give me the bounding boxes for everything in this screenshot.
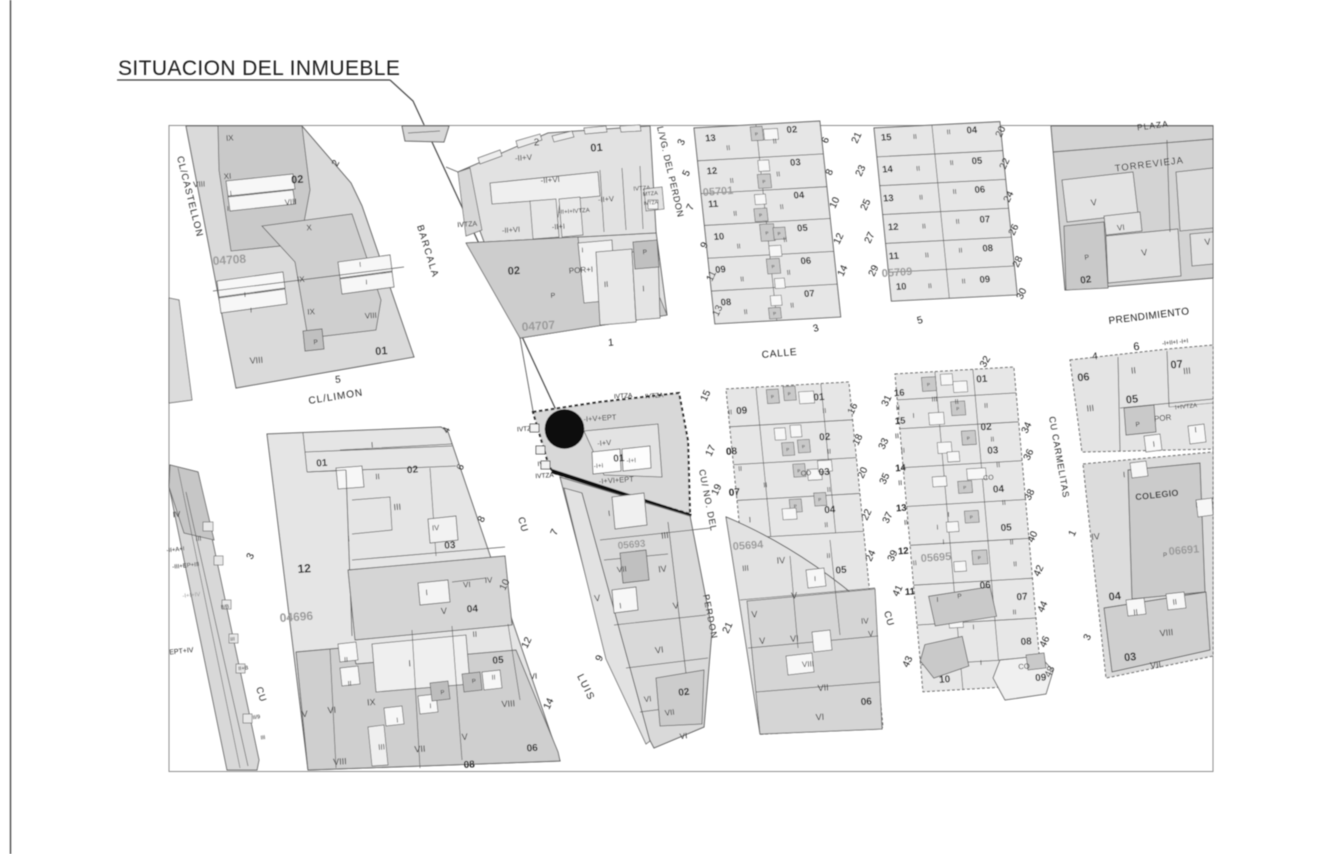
svg-text:13: 13 bbox=[896, 503, 907, 515]
svg-text:05695: 05695 bbox=[920, 551, 951, 565]
svg-text:III: III bbox=[661, 530, 670, 541]
svg-text:IV: IV bbox=[485, 575, 494, 585]
svg-text:VII: VII bbox=[414, 744, 426, 755]
svg-text:V: V bbox=[594, 593, 601, 604]
svg-text:II: II bbox=[925, 252, 930, 259]
svg-text:II: II bbox=[895, 433, 899, 440]
svg-text:III: III bbox=[1086, 403, 1095, 414]
svg-text:P: P bbox=[970, 515, 973, 520]
svg-text:II: II bbox=[1130, 365, 1136, 375]
svg-text:06: 06 bbox=[1077, 371, 1090, 384]
svg-text:IV: IV bbox=[776, 555, 785, 566]
svg-text:02: 02 bbox=[291, 174, 304, 187]
svg-text:II: II bbox=[1012, 609, 1016, 616]
svg-text:-I+I: -I+I bbox=[626, 457, 636, 465]
svg-text:-II+VI: -II+VI bbox=[540, 175, 560, 185]
svg-text:08: 08 bbox=[463, 759, 475, 771]
svg-text:IV: IV bbox=[658, 563, 668, 574]
svg-text:VI: VI bbox=[1117, 223, 1126, 233]
svg-text:VI: VI bbox=[463, 580, 471, 590]
svg-text:II: II bbox=[776, 171, 781, 178]
svg-text:01: 01 bbox=[375, 345, 388, 358]
svg-text:07: 07 bbox=[804, 288, 816, 300]
svg-text:04: 04 bbox=[793, 190, 805, 202]
svg-text:01: 01 bbox=[316, 458, 328, 470]
svg-text:04: 04 bbox=[1108, 590, 1122, 603]
svg-text:IX: IX bbox=[307, 307, 316, 317]
svg-text:P: P bbox=[967, 436, 970, 441]
svg-text:II: II bbox=[779, 204, 784, 211]
svg-text:IVTZA: IVTZA bbox=[535, 472, 555, 480]
svg-text:II: II bbox=[904, 520, 908, 527]
svg-text:II: II bbox=[928, 283, 933, 290]
svg-text:02: 02 bbox=[786, 124, 798, 136]
svg-text:II: II bbox=[950, 160, 955, 167]
svg-text:IV: IV bbox=[432, 523, 440, 532]
svg-text:01: 01 bbox=[590, 142, 603, 155]
svg-text:IV: IV bbox=[861, 616, 870, 626]
svg-text:V: V bbox=[301, 709, 308, 719]
svg-text:P: P bbox=[472, 679, 476, 685]
svg-text:01: 01 bbox=[976, 374, 988, 386]
svg-text:02: 02 bbox=[507, 265, 520, 278]
svg-text:03: 03 bbox=[790, 157, 802, 169]
svg-text:06: 06 bbox=[800, 256, 812, 268]
svg-text:III: III bbox=[931, 396, 937, 403]
svg-text:IX: IX bbox=[367, 697, 376, 708]
svg-text:13: 13 bbox=[883, 193, 895, 204]
svg-text:P: P bbox=[786, 447, 789, 452]
svg-text:II: II bbox=[344, 657, 348, 664]
svg-text:05701: 05701 bbox=[702, 185, 733, 199]
svg-text:P: P bbox=[762, 179, 766, 184]
svg-text:11: 11 bbox=[708, 199, 720, 211]
svg-text:II: II bbox=[729, 178, 734, 185]
svg-text:10: 10 bbox=[939, 674, 951, 686]
svg-text:-II+I: -II+I bbox=[551, 222, 565, 232]
svg-text:05709: 05709 bbox=[881, 266, 912, 280]
svg-text:VIII: VIII bbox=[284, 197, 297, 207]
svg-text:II: II bbox=[1009, 539, 1013, 546]
svg-text:VII: VII bbox=[664, 708, 675, 718]
svg-text:II: II bbox=[743, 309, 748, 316]
svg-text:V: V bbox=[751, 609, 758, 619]
svg-text:II: II bbox=[375, 472, 380, 481]
svg-text:12: 12 bbox=[706, 166, 718, 178]
svg-text:VIII: VIII bbox=[333, 756, 347, 767]
svg-text:-II+V: -II+V bbox=[515, 153, 533, 163]
svg-text:06: 06 bbox=[526, 743, 538, 755]
svg-text:12: 12 bbox=[898, 546, 909, 558]
svg-text:II: II bbox=[783, 237, 788, 244]
svg-text:CO: CO bbox=[1018, 661, 1030, 671]
svg-text:II: II bbox=[763, 482, 767, 489]
svg-text:II: II bbox=[822, 408, 826, 415]
svg-text:14: 14 bbox=[895, 463, 907, 475]
svg-text:II: II bbox=[952, 189, 957, 196]
svg-text:III: III bbox=[742, 564, 749, 573]
svg-text:II: II bbox=[772, 138, 777, 145]
svg-text:VIII: VIII bbox=[1159, 627, 1173, 638]
svg-text:P: P bbox=[1163, 553, 1167, 559]
svg-text:II: II bbox=[996, 462, 1000, 469]
svg-text:06: 06 bbox=[979, 580, 991, 592]
svg-text:02: 02 bbox=[980, 422, 992, 434]
svg-text:05: 05 bbox=[492, 655, 504, 667]
svg-text:VI: VI bbox=[790, 633, 799, 644]
svg-text:II: II bbox=[955, 219, 960, 226]
svg-text:08: 08 bbox=[726, 446, 738, 458]
svg-text:03: 03 bbox=[1124, 651, 1137, 664]
svg-text:POR: POR bbox=[1154, 413, 1172, 424]
svg-text:VIII: VIII bbox=[501, 698, 515, 709]
svg-text:II: II bbox=[958, 248, 963, 255]
svg-text:VII: VII bbox=[616, 564, 627, 574]
svg-text:III: III bbox=[1183, 366, 1192, 377]
svg-text:P: P bbox=[773, 311, 777, 316]
svg-text:15: 15 bbox=[895, 416, 907, 428]
svg-text:CO: CO bbox=[983, 475, 995, 483]
svg-text:II: II bbox=[826, 553, 830, 560]
svg-text:04696: 04696 bbox=[279, 609, 314, 625]
svg-text:01: 01 bbox=[613, 453, 625, 465]
svg-text:II: II bbox=[786, 270, 791, 277]
svg-text:-II+VI: -II+VI bbox=[502, 225, 521, 235]
svg-text:VI: VI bbox=[529, 672, 537, 682]
svg-text:09: 09 bbox=[736, 405, 748, 417]
svg-text:13: 13 bbox=[705, 133, 717, 145]
svg-text:05694: 05694 bbox=[732, 539, 764, 553]
svg-text:II: II bbox=[984, 403, 988, 410]
svg-text:04: 04 bbox=[966, 125, 978, 137]
svg-text:11: 11 bbox=[888, 251, 900, 262]
svg-text:03: 03 bbox=[818, 467, 830, 479]
svg-text:II: II bbox=[961, 278, 966, 285]
svg-text:03: 03 bbox=[987, 445, 999, 457]
svg-text:P: P bbox=[550, 292, 555, 299]
svg-text:P: P bbox=[802, 444, 805, 449]
svg-text:02: 02 bbox=[1080, 274, 1093, 286]
svg-text:VI: VI bbox=[654, 644, 664, 655]
svg-text:05: 05 bbox=[971, 156, 983, 168]
svg-text:II+B: II+B bbox=[238, 665, 249, 672]
svg-text:VIII: VIII bbox=[364, 311, 377, 321]
svg-text:P: P bbox=[978, 555, 981, 560]
svg-text:06: 06 bbox=[860, 696, 872, 708]
svg-text:02: 02 bbox=[819, 432, 831, 444]
svg-text:6: 6 bbox=[1133, 341, 1140, 354]
svg-text:II: II bbox=[738, 466, 742, 473]
svg-text:P: P bbox=[956, 406, 959, 411]
svg-text:CO: CO bbox=[800, 470, 812, 478]
svg-text:II: II bbox=[726, 145, 731, 152]
svg-text:07: 07 bbox=[728, 487, 740, 499]
svg-text:P: P bbox=[1135, 421, 1140, 428]
svg-text:05: 05 bbox=[797, 223, 809, 235]
svg-text:II: II bbox=[913, 560, 917, 567]
svg-text:P: P bbox=[963, 485, 966, 490]
svg-text:VI: VI bbox=[643, 694, 652, 704]
svg-text:P: P bbox=[755, 131, 759, 136]
svg-text:VI: VI bbox=[679, 731, 688, 741]
svg-text:II: II bbox=[1002, 500, 1006, 507]
svg-text:05: 05 bbox=[1125, 393, 1138, 406]
svg-text:04: 04 bbox=[466, 604, 478, 616]
svg-text:II: II bbox=[946, 129, 951, 136]
svg-text:II: II bbox=[1013, 561, 1017, 568]
svg-text:P: P bbox=[957, 593, 962, 600]
svg-text:II: II bbox=[736, 243, 741, 250]
svg-text:P: P bbox=[643, 249, 648, 256]
svg-text:II: II bbox=[733, 211, 738, 218]
svg-text:III: III bbox=[378, 742, 385, 751]
svg-text:II/B: II/B bbox=[221, 604, 230, 611]
svg-text:III: III bbox=[393, 502, 401, 512]
svg-text:P: P bbox=[818, 497, 821, 502]
svg-text:P: P bbox=[771, 264, 775, 269]
svg-text:II: II bbox=[916, 166, 921, 173]
svg-text:V: V bbox=[672, 600, 679, 611]
svg-text:VIII: VIII bbox=[249, 355, 263, 366]
svg-text:II: II bbox=[824, 522, 828, 529]
svg-text:II: II bbox=[990, 436, 994, 443]
svg-text:II: II bbox=[827, 487, 831, 494]
svg-text:IVTZA: IVTZA bbox=[645, 392, 665, 400]
svg-text:IX: IX bbox=[297, 275, 306, 285]
svg-text:08: 08 bbox=[982, 243, 994, 254]
svg-text:05: 05 bbox=[1000, 522, 1012, 534]
svg-text:II: II bbox=[1172, 597, 1177, 606]
svg-text:SITUACION DEL INMUEBLE: SITUACION DEL INMUEBLE bbox=[118, 57, 400, 80]
svg-text:P: P bbox=[787, 391, 790, 396]
svg-text:VI: VI bbox=[327, 705, 336, 716]
svg-text:08: 08 bbox=[1020, 636, 1032, 648]
svg-text:P: P bbox=[771, 394, 774, 399]
svg-text:04707: 04707 bbox=[521, 318, 556, 334]
svg-text:II: II bbox=[896, 405, 900, 412]
svg-text:P: P bbox=[440, 690, 444, 696]
svg-text:P: P bbox=[313, 339, 318, 346]
svg-text:V: V bbox=[1090, 197, 1097, 208]
svg-text:15: 15 bbox=[880, 132, 892, 144]
svg-text:II: II bbox=[827, 449, 831, 456]
svg-text:VII: VII bbox=[817, 682, 829, 693]
svg-text:II: II bbox=[740, 276, 745, 283]
svg-text:IVTZA: IVTZA bbox=[614, 392, 634, 400]
svg-text:10: 10 bbox=[895, 281, 907, 292]
svg-text:09: 09 bbox=[979, 274, 991, 285]
svg-text:11: 11 bbox=[905, 586, 917, 598]
svg-text:05: 05 bbox=[835, 565, 847, 577]
svg-text:II: II bbox=[348, 681, 352, 688]
svg-text:03: 03 bbox=[444, 540, 456, 552]
svg-text:VII: VII bbox=[1150, 659, 1162, 670]
svg-text:V: V bbox=[441, 606, 448, 616]
svg-text:II: II bbox=[790, 303, 795, 310]
svg-text:VIII: VIII bbox=[193, 179, 206, 189]
svg-text:P: P bbox=[927, 382, 930, 387]
svg-text:V: V bbox=[1141, 247, 1148, 258]
svg-text:IX: IX bbox=[226, 133, 235, 143]
svg-text:II: II bbox=[728, 409, 732, 416]
svg-text:II/9: II/9 bbox=[252, 714, 260, 721]
svg-text:04708: 04708 bbox=[212, 252, 247, 268]
svg-text:II: II bbox=[1133, 608, 1138, 617]
svg-text:P: P bbox=[759, 213, 763, 218]
svg-text:P: P bbox=[777, 231, 781, 236]
svg-text:16: 16 bbox=[894, 388, 905, 400]
svg-text:04: 04 bbox=[993, 484, 1005, 496]
svg-text:-II+V: -II+V bbox=[598, 194, 615, 204]
svg-text:12: 12 bbox=[297, 561, 312, 576]
svg-text:07: 07 bbox=[1016, 591, 1028, 603]
svg-text:XI: XI bbox=[223, 172, 231, 182]
svg-text:VI: VI bbox=[815, 712, 824, 723]
svg-text:II: II bbox=[955, 399, 959, 406]
svg-text:07: 07 bbox=[1170, 358, 1183, 371]
svg-text:-I+I: -I+I bbox=[594, 463, 604, 471]
svg-text:II: II bbox=[913, 134, 918, 141]
svg-text:P: P bbox=[765, 230, 769, 235]
svg-text:-I+V: -I+V bbox=[597, 438, 612, 448]
svg-text:01: 01 bbox=[813, 392, 825, 404]
svg-text:02: 02 bbox=[407, 464, 419, 476]
svg-text:IV: IV bbox=[1091, 531, 1101, 542]
svg-text:II: II bbox=[919, 195, 924, 202]
svg-text:VIII: VIII bbox=[802, 659, 815, 669]
svg-text:07: 07 bbox=[979, 214, 991, 225]
svg-text:IVTZA: IVTZA bbox=[457, 221, 478, 229]
svg-text:II: II bbox=[901, 448, 905, 455]
svg-text:II: II bbox=[898, 480, 902, 487]
svg-text:14: 14 bbox=[882, 164, 894, 176]
svg-text:V: V bbox=[791, 590, 798, 600]
svg-text:02: 02 bbox=[678, 687, 691, 699]
svg-text:II: II bbox=[922, 223, 927, 230]
svg-text:12: 12 bbox=[887, 222, 899, 233]
svg-text:10: 10 bbox=[713, 231, 725, 243]
svg-text:II: II bbox=[472, 630, 477, 639]
svg-text:V: V bbox=[461, 732, 468, 742]
svg-text:06: 06 bbox=[974, 184, 986, 195]
svg-text:04: 04 bbox=[824, 504, 836, 516]
svg-text:II: II bbox=[604, 280, 609, 289]
svg-text:V: V bbox=[759, 636, 766, 646]
svg-text:II: II bbox=[491, 675, 495, 682]
svg-text:POR+I: POR+I bbox=[569, 265, 594, 276]
svg-text:V: V bbox=[1204, 236, 1211, 247]
svg-text:III: III bbox=[195, 536, 202, 544]
